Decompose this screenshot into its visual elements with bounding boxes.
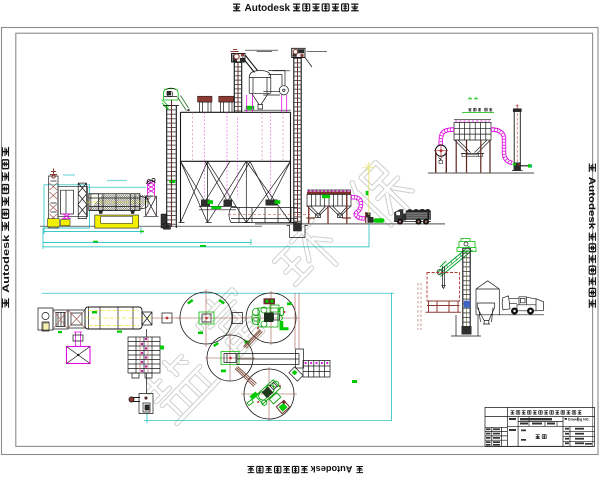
svg-text:Drawing NO.: Drawing NO. bbox=[568, 418, 590, 422]
